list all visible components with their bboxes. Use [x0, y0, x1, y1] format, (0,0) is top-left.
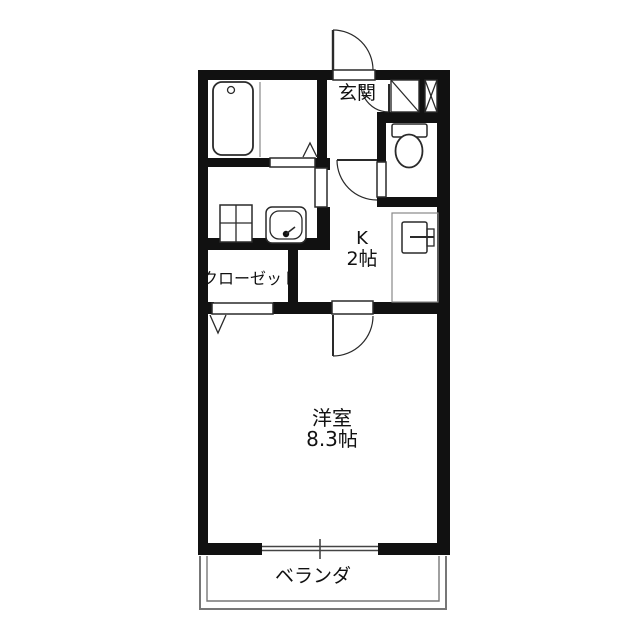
- wall-top-left: [198, 70, 333, 80]
- entrance-door-arc: [333, 30, 373, 70]
- kitchen-doorway-frame: [315, 168, 327, 207]
- veranda-label: ベランダ: [263, 567, 363, 587]
- room-door-frame: [332, 301, 373, 314]
- room-door-arc: [333, 316, 373, 356]
- western-room-name: 洋室: [282, 408, 382, 429]
- toilet-door-frame: [377, 162, 386, 197]
- folding-door-mark-closet: [210, 315, 226, 333]
- closet-label: クローゼット: [202, 271, 294, 288]
- toilet-bowl: [396, 135, 423, 168]
- kitchen-sink: [266, 207, 306, 243]
- refrigerator-space: [392, 213, 438, 302]
- wall-mid-right: [373, 302, 450, 314]
- kitchen-label: K: [342, 230, 382, 249]
- kitchen-size-label: 2帖: [332, 250, 392, 270]
- floorplan-drawing: [0, 0, 640, 640]
- entrance-label: 玄関: [327, 84, 387, 104]
- toilet-door-arc: [337, 160, 377, 200]
- wall-toilet-top: [377, 112, 450, 123]
- entrance-threshold: [333, 70, 375, 80]
- western-room-label: 洋室 8.3帖: [282, 408, 382, 450]
- western-room-size: 8.3帖: [282, 429, 382, 450]
- wall-toilet-left: [377, 112, 386, 162]
- wall-toilet-bottom: [377, 197, 450, 207]
- wall-left: [198, 70, 208, 555]
- wall-bottom-left: [198, 543, 262, 555]
- wall-bath-right: [317, 80, 327, 167]
- wall-pipe-space-divider: [419, 78, 425, 112]
- folding-door-mark-bath: [303, 143, 317, 157]
- closet-threshold: [212, 303, 273, 314]
- wall-bottom-right: [378, 543, 450, 555]
- wall-bath-bottom-left: [208, 158, 270, 167]
- bath-threshold: [270, 158, 315, 167]
- wall-mid-center: [273, 302, 332, 314]
- floorplan-canvas: 玄関 K 2帖 クローゼット 洋室 8.3帖 ベランダ: [0, 0, 640, 640]
